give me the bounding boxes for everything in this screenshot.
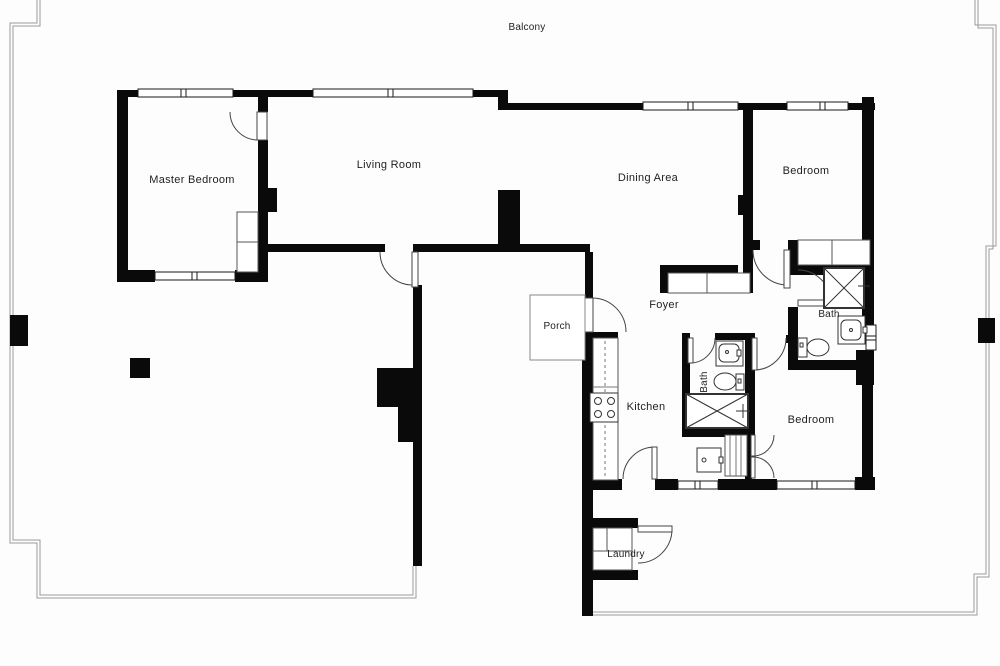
window-icon bbox=[678, 481, 718, 489]
closet-icon bbox=[725, 435, 747, 476]
window-icon bbox=[138, 89, 233, 97]
door-arc-icon bbox=[623, 447, 657, 479]
window-icon bbox=[643, 102, 738, 110]
column-icon bbox=[498, 190, 520, 248]
sink-icon bbox=[716, 341, 743, 366]
room-label-laundry: Laundry bbox=[607, 549, 645, 560]
door-arc-icon bbox=[230, 112, 267, 140]
room-label-master-bedroom: Master Bedroom bbox=[149, 174, 235, 186]
room-label-foyer: Foyer bbox=[649, 299, 679, 311]
wall-segment bbox=[582, 332, 593, 616]
wall-segment bbox=[743, 240, 760, 250]
wall-segment bbox=[117, 270, 155, 282]
room-label-bedroom-bottom: Bedroom bbox=[788, 414, 835, 426]
wall-segment bbox=[587, 479, 622, 490]
columns bbox=[10, 188, 995, 442]
sink-icon bbox=[838, 316, 867, 344]
door-arc-icon bbox=[753, 250, 790, 288]
room-label-bath-mid: Bath bbox=[699, 371, 710, 392]
wall-segment bbox=[655, 479, 678, 490]
room-label-bath-right: Bath bbox=[818, 309, 839, 320]
door-arc-icon bbox=[688, 338, 715, 363]
wall-segment bbox=[117, 90, 128, 282]
closet-icon bbox=[668, 273, 750, 293]
wall-segment bbox=[233, 90, 313, 97]
wall-segment bbox=[413, 285, 422, 566]
wall-segment bbox=[585, 252, 593, 298]
wall-segment bbox=[593, 518, 638, 528]
window-icon bbox=[155, 272, 235, 280]
wall-segment bbox=[738, 195, 753, 215]
shower-icon bbox=[686, 394, 750, 428]
wall-segment bbox=[660, 265, 668, 293]
floor-plan-svg: Balcony Master Bedroom Living Room Dinin… bbox=[0, 0, 1000, 666]
room-label-living-room: Living Room bbox=[357, 159, 421, 171]
wall-segment bbox=[258, 140, 268, 188]
column-icon bbox=[130, 358, 150, 378]
window-icon bbox=[777, 481, 855, 489]
double-closet-doors bbox=[751, 435, 774, 478]
wall-segment bbox=[862, 385, 873, 490]
door-arc-icon bbox=[380, 252, 418, 287]
closet-icon bbox=[237, 212, 258, 272]
column-icon bbox=[10, 315, 28, 346]
wall-segment bbox=[718, 479, 777, 490]
fixtures bbox=[237, 212, 870, 570]
wall-segment bbox=[258, 95, 268, 112]
toilet-icon bbox=[798, 338, 829, 357]
wall-segment bbox=[265, 244, 385, 252]
wall-segment bbox=[786, 335, 790, 343]
column-icon bbox=[978, 318, 995, 343]
wall-segment bbox=[788, 360, 860, 370]
wall-segment bbox=[855, 477, 875, 490]
shower-icon bbox=[824, 268, 870, 308]
door-arc-icon bbox=[752, 338, 786, 370]
sink-icon bbox=[697, 448, 723, 472]
room-label-balcony: Balcony bbox=[509, 22, 546, 33]
wall-segment bbox=[662, 265, 738, 273]
windows bbox=[138, 89, 876, 489]
window-icon bbox=[787, 102, 848, 110]
wall-segment bbox=[413, 244, 590, 252]
wall-segment bbox=[738, 103, 787, 110]
room-label-porch: Porch bbox=[543, 321, 570, 332]
stove-icon bbox=[590, 393, 618, 422]
floor-plan-page: Balcony Master Bedroom Living Room Dinin… bbox=[0, 0, 1000, 666]
room-label-bedroom-top: Bedroom bbox=[783, 165, 830, 177]
column-icon bbox=[258, 188, 277, 212]
wall-segment bbox=[500, 103, 643, 110]
closet-icon bbox=[798, 240, 870, 265]
duct-column bbox=[377, 368, 413, 442]
window-icon bbox=[313, 89, 473, 97]
door-arc-icon bbox=[584, 298, 626, 332]
room-label-dining-area: Dining Area bbox=[618, 172, 679, 184]
wall-segment bbox=[593, 570, 638, 580]
toilet-icon bbox=[714, 373, 744, 390]
room-label-kitchen: Kitchen bbox=[627, 401, 666, 413]
wall-segment bbox=[856, 350, 874, 385]
walls bbox=[117, 90, 875, 616]
